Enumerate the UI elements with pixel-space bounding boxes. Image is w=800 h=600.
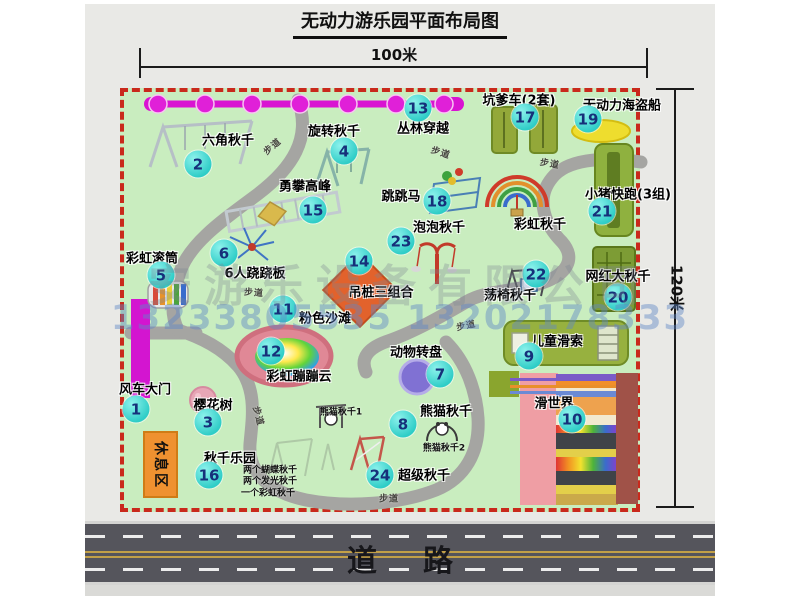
facility-badge-21: 21 bbox=[589, 198, 616, 225]
facility-badge-13: 13 bbox=[405, 95, 432, 122]
facility-badge-17: 17 bbox=[512, 104, 539, 131]
facility-badge-20: 20 bbox=[605, 284, 632, 311]
park-layout-screenshot: 无动力游乐园平面布局图 100米 120米 bbox=[0, 0, 800, 600]
dimension-tick-right-bottom bbox=[656, 506, 694, 508]
facility-sublabel: 熊猫秋千1 bbox=[320, 405, 362, 418]
facility-badge-2: 2 bbox=[185, 151, 212, 178]
facility-badge-11: 11 bbox=[270, 296, 297, 323]
facility-label-24: 超级秋千 bbox=[398, 465, 450, 484]
walkway-label: 步道 bbox=[379, 492, 399, 505]
facility-badge-18: 18 bbox=[424, 188, 451, 215]
facility-label-彩虹秋千: 彩虹秋千 bbox=[514, 214, 566, 233]
road-label: 道路 bbox=[85, 536, 715, 580]
walkway-label: 步道 bbox=[244, 285, 265, 299]
facility-label-22: 荡椅秋千 bbox=[484, 285, 536, 304]
dimension-tick-right-top bbox=[656, 88, 694, 90]
facility-label-14: 吊桩三组合 bbox=[348, 282, 413, 301]
facility-label-23: 泡泡秋千 bbox=[413, 217, 465, 236]
facility-badge-22: 22 bbox=[523, 261, 550, 288]
facility-badge-1: 1 bbox=[123, 396, 150, 423]
facility-badge-4: 4 bbox=[331, 138, 358, 165]
facility-badge-14: 14 bbox=[346, 248, 373, 275]
facility-sublabel: 熊猫秋千2 bbox=[423, 441, 465, 454]
facility-sublabel: 一个彩虹秋千 bbox=[241, 486, 295, 499]
facility-badge-19: 19 bbox=[575, 106, 602, 133]
facility-label-12: 彩虹蹦蹦云 bbox=[266, 366, 331, 385]
rest-area-box: 休息区 bbox=[143, 431, 178, 498]
dimension-label-height: 120米 bbox=[667, 265, 688, 311]
facility-label-8: 熊猫秋千 bbox=[420, 401, 472, 420]
facility-label-20: 网红大秋千 bbox=[585, 266, 650, 285]
dimension-label-width: 100米 bbox=[140, 44, 648, 65]
facility-label-11: 粉色沙滩 bbox=[299, 308, 351, 327]
facility-badge-8: 8 bbox=[390, 411, 417, 438]
facility-label-6: 6人跷跷板 bbox=[224, 263, 285, 282]
facility-label-18: 跳跳马 bbox=[381, 186, 420, 205]
facility-badge-15: 15 bbox=[300, 197, 327, 224]
facility-badge-24: 24 bbox=[367, 462, 394, 489]
facility-label-7: 动物转盘 bbox=[390, 342, 442, 361]
facility-badge-10: 10 bbox=[559, 406, 586, 433]
facility-badge-5: 5 bbox=[148, 262, 175, 289]
facility-badge-3: 3 bbox=[195, 409, 222, 436]
facility-badge-12: 12 bbox=[258, 338, 285, 365]
facility-badge-23: 23 bbox=[388, 228, 415, 255]
dimension-line-top bbox=[140, 66, 648, 68]
facility-label-2: 六角秋千 bbox=[202, 130, 254, 149]
facility-badge-9: 9 bbox=[516, 343, 543, 370]
facility-badge-7: 7 bbox=[427, 361, 454, 388]
facility-label-1: 风车大门 bbox=[119, 379, 171, 398]
road-shoulder bbox=[85, 585, 715, 596]
facility-label-4: 旋转秋千 bbox=[308, 121, 360, 140]
road: 道路 bbox=[85, 521, 715, 585]
facility-label-15: 勇攀高峰 bbox=[279, 176, 331, 195]
page-title: 无动力游乐园平面布局图 bbox=[293, 7, 507, 39]
rest-area-label: 休息区 bbox=[151, 441, 171, 489]
facility-badge-16: 16 bbox=[196, 462, 223, 489]
facility-badge-6: 6 bbox=[211, 240, 238, 267]
